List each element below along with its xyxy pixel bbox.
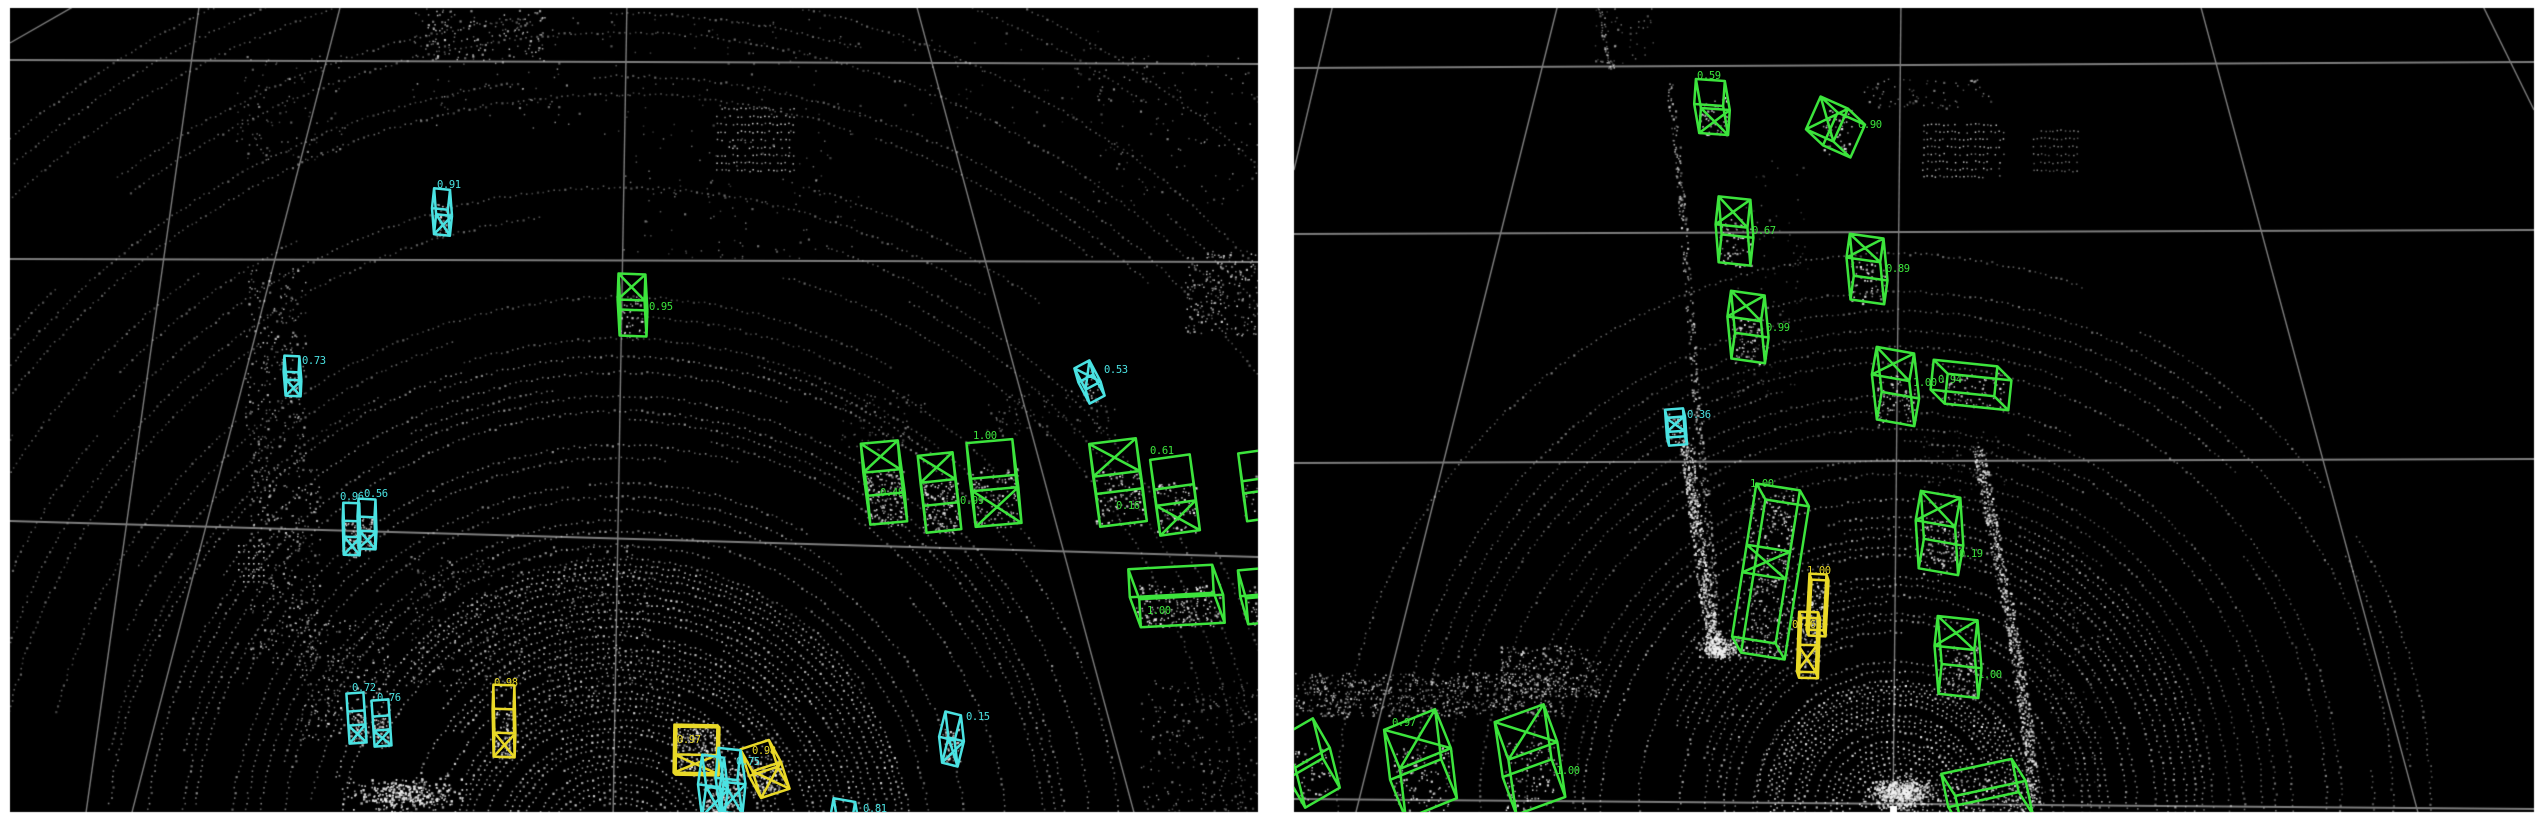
lidar-view-right[interactable] <box>1294 8 2534 812</box>
lidar-view-left[interactable] <box>10 8 1258 812</box>
lidar-detection-viewer: 0.910.730.950.480.991.000.160.610.531.00… <box>0 0 2542 820</box>
